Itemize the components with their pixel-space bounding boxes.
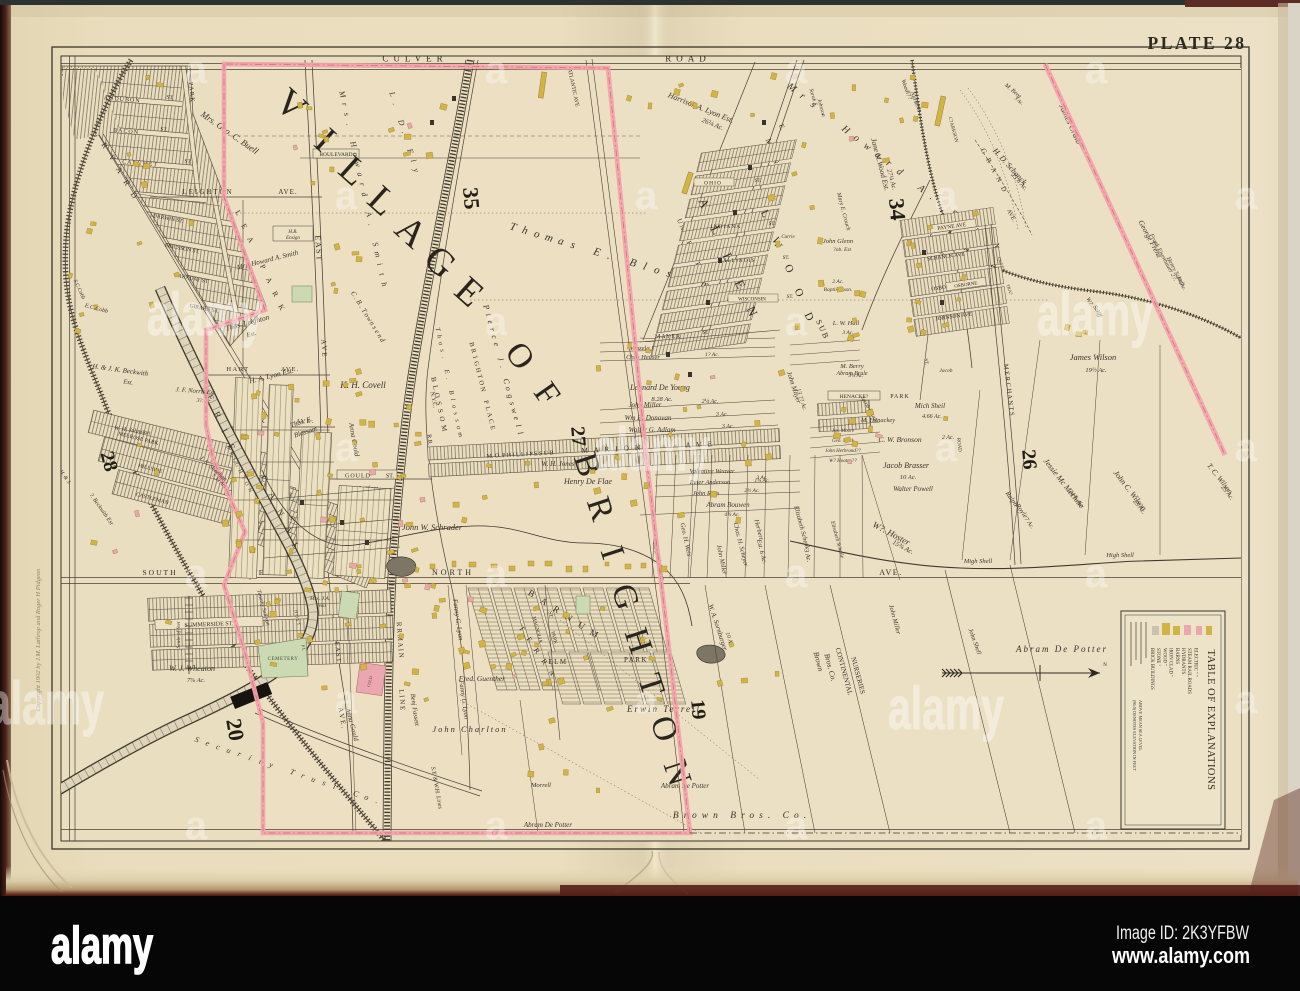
svg-text:Fred. Guenther: Fred. Guenther (458, 674, 505, 683)
svg-text:Scale of feet: Scale of feet (175, 621, 182, 648)
svg-text:Geo. Mock: Geo. Mock (832, 439, 855, 444)
svg-text:a: a (1085, 804, 1108, 848)
svg-text:BRICK BUILDINGS: BRICK BUILDINGS (1149, 648, 1154, 690)
svg-text:1? Ac.: 1? Ac. (705, 352, 719, 358)
svg-text:WOOD ": WOOD " (1161, 648, 1166, 666)
svg-text:Abram De Potter: Abram De Potter (523, 821, 572, 829)
svg-text:AVE.: AVE. (879, 568, 902, 577)
svg-text:W? Hoaten??: W? Hoaten?? (829, 459, 857, 464)
svg-text:a: a (785, 804, 808, 848)
svg-text:a: a (1235, 678, 1258, 722)
svg-text:Ensign: Ensign (285, 236, 300, 241)
svg-text:4.66 Ac.: 4.66 Ac. (922, 413, 942, 420)
svg-text:ABOVE MEAN SEA LEVEL: ABOVE MEAN SEA LEVEL (1138, 700, 1143, 751)
svg-text:M. Berry: M. Berry (839, 363, 864, 370)
svg-text:a: a (635, 678, 658, 722)
svg-text:26: 26 (1017, 449, 1041, 471)
svg-text:BARNS: BARNS (1174, 648, 1179, 664)
svg-text:a: a (485, 552, 508, 596)
svg-text:H.B.: H.B. (287, 230, 297, 235)
svg-text:OHIO: OHIO (704, 181, 722, 187)
svg-text:a: a (185, 552, 208, 596)
svg-text:a: a (1235, 426, 1258, 470)
svg-text:a: a (485, 300, 508, 344)
svg-text:a: a (935, 174, 958, 218)
svg-text:John Glenn: John Glenn (823, 238, 853, 245)
svg-text:ST.: ST. (184, 159, 193, 166)
svg-text:3?.: 3?. (195, 398, 203, 405)
svg-text:STEAM RAIL ROADS: STEAM RAIL ROADS (1186, 648, 1191, 694)
svg-text:WISCONSIN: WISCONSIN (738, 298, 766, 303)
svg-text:PARK: PARK (890, 394, 909, 400)
svg-text:www.alamy.com: www.alamy.com (1111, 943, 1250, 968)
svg-text:MAYER: MAYER (655, 334, 681, 340)
svg-text:10 Ac.: 10 Ac. (900, 474, 917, 481)
svg-text:CEMETERY: CEMETERY (268, 657, 299, 662)
svg-text:a: a (335, 174, 358, 218)
svg-text:Jacob Brasser: Jacob Brasser (883, 461, 930, 470)
svg-text:alamy: alamy (594, 416, 710, 483)
svg-text:a: a (635, 174, 658, 218)
svg-text:Migh Shell: Migh Shell (963, 558, 993, 565)
svg-text:a: a (1085, 48, 1108, 92)
svg-text:Mich Sheil: Mich Sheil (914, 402, 945, 410)
svg-text:3¾ Ac.: 3¾ Ac. (847, 373, 863, 379)
svg-text:Walter Powell: Walter Powell (893, 485, 933, 493)
svg-text:1¾ Ac.: 1¾ Ac. (754, 478, 769, 484)
svg-text:L I N E: L I N E (397, 689, 406, 710)
svg-text:35: 35 (458, 186, 485, 210)
svg-text:a: a (785, 552, 808, 596)
svg-text:ST.: ST. (769, 222, 776, 227)
svg-text:a: a (485, 48, 508, 92)
svg-text:2¼ Ac.: 2¼ Ac. (702, 399, 719, 405)
svg-text:2½ Ac.: 2½ Ac. (744, 487, 759, 494)
svg-text:Carrie: Carrie (781, 235, 795, 240)
svg-text:ST.: ST. (923, 358, 929, 365)
svg-text:STONE ": STONE " (1155, 648, 1160, 667)
svg-text:alamy: alamy (888, 675, 1004, 742)
svg-text:PARK: PARK (624, 656, 648, 664)
svg-text:Vail: Vail (318, 604, 326, 609)
svg-text:a: a (785, 300, 808, 344)
svg-text:ST.: ST. (547, 611, 554, 620)
svg-text:ELECTRIC " ": ELECTRIC " " (1192, 648, 1197, 677)
svg-text:E A S T: E A S T (313, 235, 324, 261)
svg-text:SOUTH: SOUTH (142, 568, 177, 577)
svg-text:3 Ac.: 3 Ac. (721, 424, 734, 430)
svg-text:ST.: ST. (755, 179, 762, 184)
svg-text:a: a (185, 804, 208, 848)
svg-text:Abram De Potter: Abram De Potter (1015, 644, 1108, 654)
svg-text:ELM: ELM (548, 658, 567, 666)
svg-text:19½ Ac.: 19½ Ac. (1085, 367, 1107, 374)
svg-text:a: a (785, 48, 808, 92)
svg-text:3 Ac.: 3 Ac. (715, 412, 728, 418)
svg-text:a: a (335, 426, 358, 470)
svg-text:C. W. Bronson: C. W. Bronson (878, 435, 921, 444)
svg-text:alamy: alamy (51, 917, 153, 975)
svg-text:A V E: A V E (319, 339, 328, 357)
svg-text:John Charlton: John Charlton (432, 724, 507, 734)
svg-text:?ob. Est: ?ob. Est (833, 247, 852, 253)
svg-text:a: a (335, 678, 358, 722)
svg-text:IRON CLAD ": IRON CLAD " (1168, 648, 1173, 677)
svg-text:ST.: ST. (166, 95, 175, 102)
svg-text:BOULEVARD: BOULEVARD (319, 152, 352, 158)
svg-text:Morrell: Morrell (530, 782, 551, 789)
svg-text:Abram Bouwen: Abram Bouwen (705, 501, 750, 509)
svg-text:19: 19 (686, 699, 710, 721)
svg-text:ST.: ST. (783, 256, 790, 261)
svg-text:ST.: ST. (386, 474, 395, 480)
svg-text:a: a (1085, 552, 1108, 596)
svg-text:alamy: alamy (0, 670, 104, 737)
svg-text:2 Ac.: 2 Ac. (832, 279, 843, 285)
svg-text:GOULD: GOULD (345, 474, 371, 480)
svg-text:alamy: alamy (1037, 281, 1153, 348)
svg-text:ST.: ST. (160, 127, 169, 134)
svg-text:HART: HART (226, 366, 249, 373)
svg-text:High Shell: High Shell (1105, 552, 1134, 559)
svg-text:TABLE OF EXPLANATIONS: TABLE OF EXPLANATIONS (1205, 650, 1216, 791)
svg-text:27: 27 (566, 426, 590, 448)
svg-text:7⅞ Ac.: 7⅞ Ac. (187, 677, 205, 684)
svg-text:Jacob: Jacob (939, 368, 952, 374)
svg-text:HYDRANTS: HYDRANTS (1180, 648, 1185, 674)
svg-text:alamy: alamy (147, 281, 263, 348)
svg-text:Image ID: 2K3YFBW: Image ID: 2K3YFBW (1116, 923, 1249, 944)
svg-text:a: a (485, 804, 508, 848)
svg-text:John Herbrand??: John Herbrand?? (825, 449, 861, 454)
svg-text:a: a (185, 48, 208, 92)
svg-text:James Wilson: James Wilson (1070, 352, 1117, 362)
svg-text:W. J. Wheaton: W. J. Wheaton (169, 664, 215, 673)
svg-text:ST.: ST. (703, 331, 710, 336)
svg-text:(96.0) DENOTES ELEVATION IN FE: (96.0) DENOTES ELEVATION IN FEET (1132, 700, 1137, 771)
svg-text:PLATE 28: PLATE 28 (1148, 33, 1247, 53)
svg-text:Mrs. J.A.: Mrs. J.A. (309, 596, 330, 602)
svg-text:20: 20 (221, 717, 249, 743)
svg-text:N: N (1103, 663, 1107, 668)
svg-text:John Miller: John Miller (629, 401, 662, 409)
svg-text:AVE.: AVE. (278, 188, 297, 196)
svg-text:a: a (1235, 174, 1258, 218)
svg-text:a: a (935, 426, 958, 470)
svg-text:NORTH: NORTH (432, 568, 474, 577)
svg-text:34: 34 (884, 197, 911, 221)
